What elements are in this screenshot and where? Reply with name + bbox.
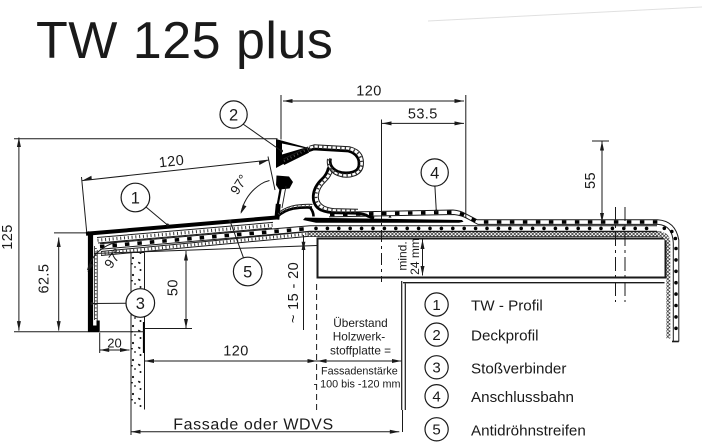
svg-text:- 100 bis -120 mm: - 100 bis -120 mm <box>314 378 401 390</box>
svg-text:Fassade oder WDVS: Fassade oder WDVS <box>173 417 333 434</box>
svg-text:62.5: 62.5 <box>37 264 53 294</box>
svg-text:120: 120 <box>223 344 248 360</box>
svg-text:Deckprofil: Deckprofil <box>471 328 539 345</box>
svg-text:20: 20 <box>107 336 121 351</box>
svg-text:3: 3 <box>432 360 440 377</box>
svg-text:Stoßverbinder: Stoßverbinder <box>471 360 566 377</box>
svg-text:125: 125 <box>0 224 16 249</box>
svg-text:Antidröhnstreifen: Antidröhnstreifen <box>471 422 586 439</box>
svg-text:Überstand: Überstand <box>333 316 387 330</box>
svg-text:~ 15 - 20: ~ 15 - 20 <box>286 262 302 323</box>
svg-text:1: 1 <box>432 297 440 314</box>
svg-text:4: 4 <box>430 164 439 182</box>
svg-text:stoffplatte =: stoffplatte = <box>330 344 391 358</box>
svg-text:TW 125 plus: TW 125 plus <box>36 12 333 70</box>
svg-text:Holzwerk-: Holzwerk- <box>333 330 386 344</box>
svg-text:Anschlussbahn: Anschlussbahn <box>471 389 574 406</box>
svg-text:2: 2 <box>229 106 238 124</box>
svg-text:TW - Profil: TW - Profil <box>471 298 543 315</box>
svg-text:24 mm: 24 mm <box>408 238 422 275</box>
svg-text:50: 50 <box>166 279 182 296</box>
svg-text:1: 1 <box>131 189 140 207</box>
svg-text:55: 55 <box>583 172 599 189</box>
svg-text:5: 5 <box>243 263 252 281</box>
svg-text:Fassadenstärke: Fassadenstärke <box>321 366 398 378</box>
svg-text:2: 2 <box>432 327 440 344</box>
svg-text:4: 4 <box>432 389 440 406</box>
svg-text:53.5: 53.5 <box>408 107 438 123</box>
svg-text:120: 120 <box>158 153 185 172</box>
svg-text:120: 120 <box>356 84 381 100</box>
svg-text:5: 5 <box>432 422 440 439</box>
svg-text:3: 3 <box>136 295 145 313</box>
